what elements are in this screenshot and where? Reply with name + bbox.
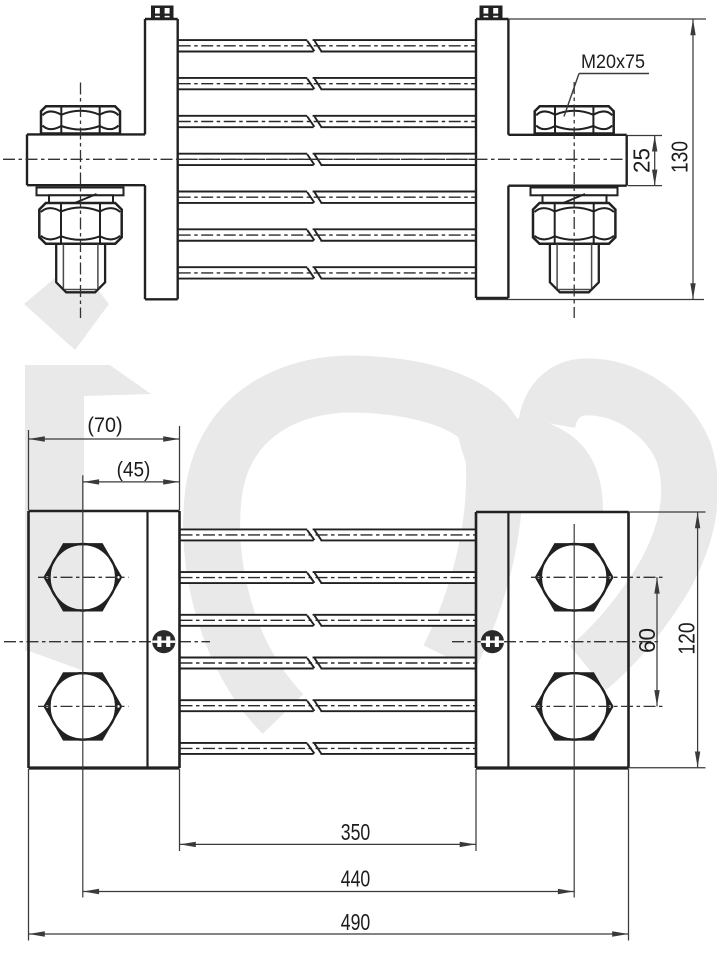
svg-text:120: 120 [674,622,700,654]
svg-text:M20x75: M20x75 [581,51,645,73]
svg-text:130: 130 [667,141,693,173]
svg-text:(70): (70) [87,414,122,437]
svg-text:490: 490 [341,909,371,935]
svg-text:440: 440 [341,866,371,892]
svg-text:25: 25 [629,148,655,173]
svg-text:60: 60 [634,628,660,653]
svg-text:(45): (45) [117,459,151,482]
svg-text:350: 350 [341,819,371,845]
